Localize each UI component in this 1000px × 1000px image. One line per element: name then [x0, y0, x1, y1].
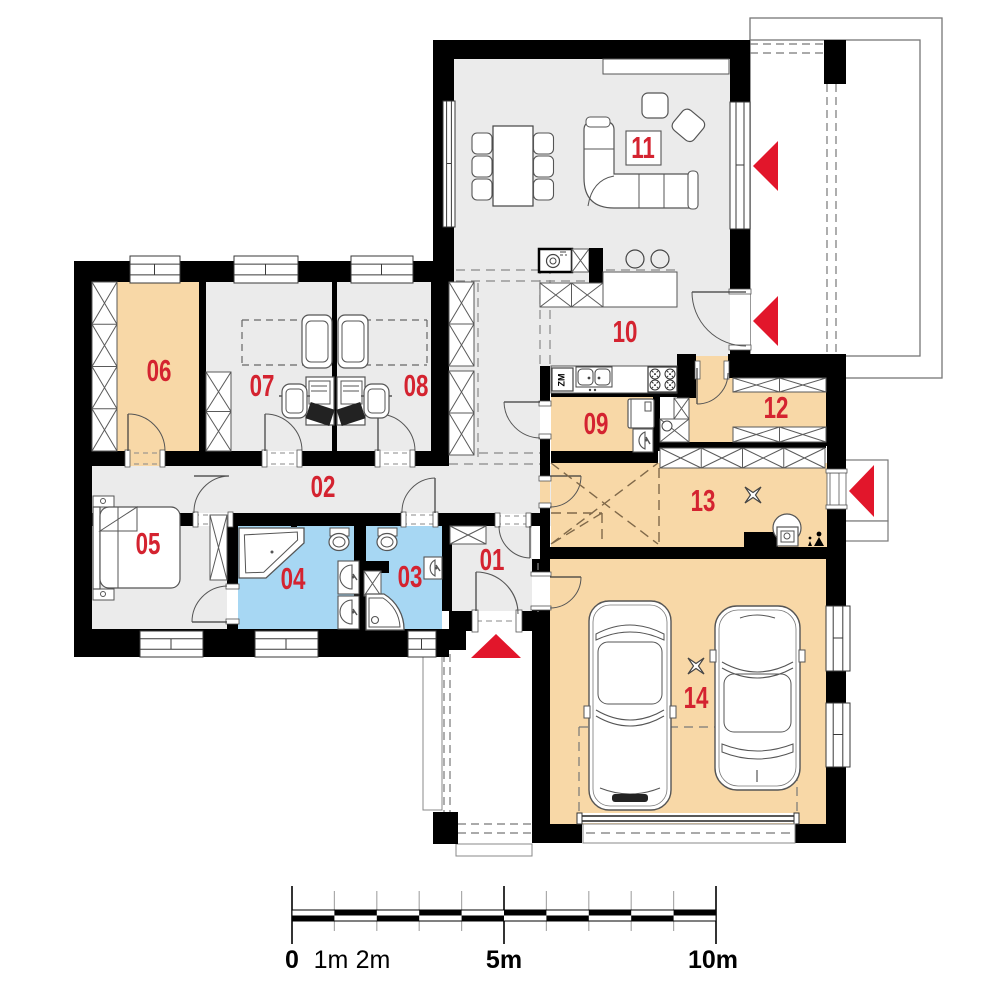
svg-text:2m: 2m [356, 946, 391, 974]
svg-text:08: 08 [404, 369, 429, 403]
svg-text:1m: 1m [314, 946, 349, 974]
svg-text:12: 12 [764, 391, 789, 425]
svg-text:09: 09 [584, 407, 609, 441]
svg-text:02: 02 [311, 470, 336, 504]
svg-text:ZM: ZM [556, 374, 566, 387]
svg-text:10m: 10m [688, 946, 738, 974]
svg-text:11: 11 [631, 131, 655, 165]
svg-text:05: 05 [136, 527, 161, 561]
svg-text:0: 0 [285, 946, 299, 974]
svg-text:5m: 5m [486, 946, 522, 974]
svg-text:10: 10 [613, 315, 638, 349]
svg-text:03: 03 [398, 560, 423, 594]
svg-text:01: 01 [480, 543, 505, 577]
svg-text:07: 07 [250, 369, 275, 403]
svg-text:06: 06 [147, 354, 172, 388]
svg-text:04: 04 [281, 562, 306, 596]
svg-text:13: 13 [691, 484, 716, 518]
svg-text:14: 14 [684, 681, 709, 715]
